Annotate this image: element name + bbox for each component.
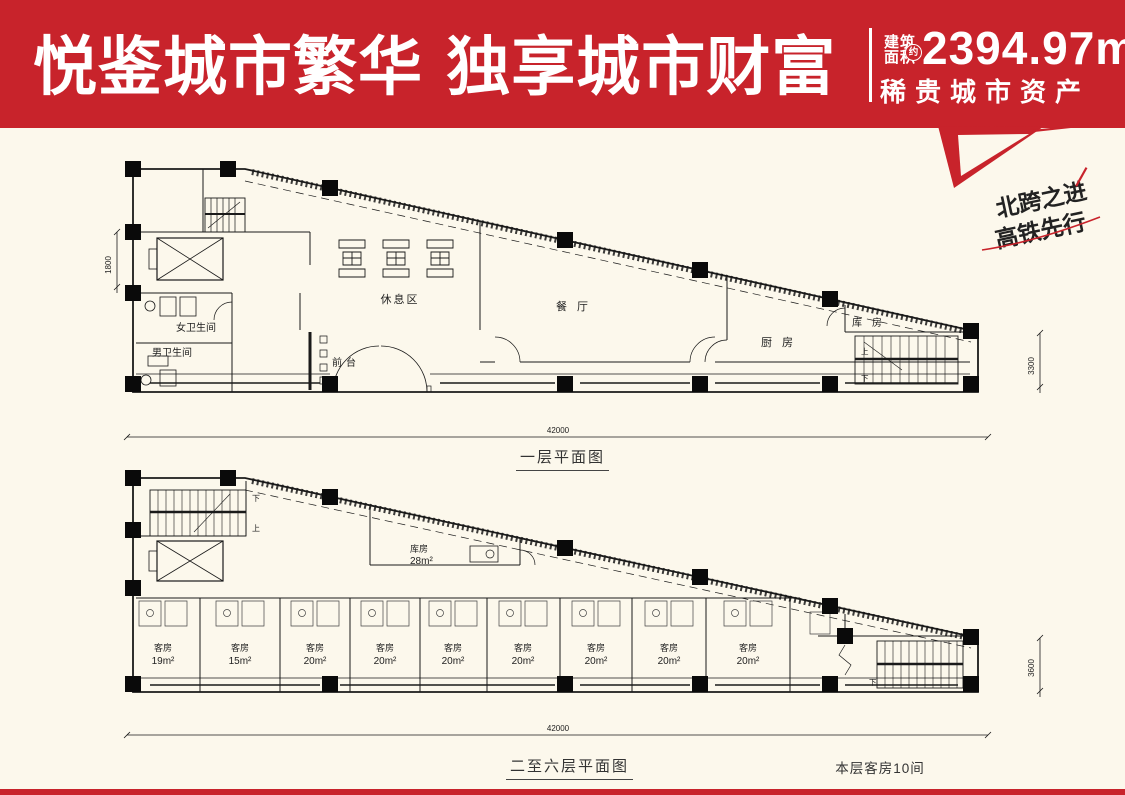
room-label-men-wc: 男卫生间 (152, 346, 192, 359)
floor2-diagonal-guide (245, 490, 971, 648)
room-name: 客房 (376, 642, 394, 653)
room-label-rest-area: 休息区 (381, 292, 420, 306)
floor1-dim-left: 1800 (104, 256, 113, 274)
room-name: 客房 (514, 642, 532, 653)
room-name: 客房 (231, 642, 249, 653)
room-area: 20m² (304, 656, 327, 667)
room-name: 客房 (660, 642, 678, 653)
floor1-stairs-topleft (205, 198, 245, 232)
floor1-stairs-right (855, 336, 958, 384)
room-area: 15m² (229, 656, 252, 667)
room-label-dining: 餐厅 (556, 299, 598, 313)
floor2-columns (125, 470, 979, 692)
wc-door-arc (214, 302, 232, 320)
storage-room-name: 库房 (410, 543, 428, 554)
room-area: 20m² (374, 656, 397, 667)
floor1-dining-kitchen-walls (480, 222, 971, 362)
floor2-elevator (149, 541, 223, 581)
room-area: 20m² (442, 656, 465, 667)
floor2-stairs-topleft (136, 481, 246, 536)
room-area: 20m² (512, 656, 535, 667)
floor1-dim-right: 3300 (1027, 357, 1036, 375)
room-label-storage: 库房 (852, 316, 892, 329)
floor2-dim-bottom: 42000 (547, 724, 570, 733)
entrance-door-arcs (333, 346, 427, 392)
floor1-rest-tables (339, 240, 453, 277)
floor1-elevator (149, 238, 223, 280)
floor2-caption-text: 二至六层平面图 (506, 755, 633, 780)
floor2-window-band (136, 678, 970, 685)
room-name: 客房 (154, 642, 172, 653)
room-name: 客房 (739, 642, 757, 653)
floor2-dimensions (124, 635, 1043, 738)
room-area: 20m² (585, 656, 608, 667)
room-area: 19m² (152, 656, 175, 667)
floor2-stairs-right (818, 614, 971, 688)
floor2-hatched-wall (252, 481, 974, 639)
floor2-room-count-note: 本层客房10间 (810, 757, 950, 777)
floor1-caption-text: 一层平面图 (516, 446, 609, 471)
room-name: 客房 (444, 642, 462, 653)
floor1-window-band (136, 346, 970, 392)
floor1-caption: 一层平面图 (480, 446, 645, 471)
floor-plans: 休息区 餐厅 厨房 库房 前台 女卫生间 男卫生间 上 下 42000 3300… (0, 0, 1125, 795)
room-label-women-wc: 女卫生间 (176, 321, 216, 334)
floor2-dim-right: 3600 (1027, 659, 1036, 677)
stair-up-label: 上 (252, 524, 260, 533)
stair-down-label: 下 (861, 374, 869, 383)
room-name: 客房 (587, 642, 605, 653)
floor2-bathroom-pods (139, 601, 830, 634)
floor1-hatched-wall (252, 172, 974, 333)
bottom-accent-strip (0, 789, 1125, 795)
room-name: 客房 (306, 642, 324, 653)
floor1-wc-fixtures (141, 297, 232, 386)
floor1-dimensions (114, 229, 1043, 440)
room-label-front-desk: 前台 (332, 356, 360, 369)
floor2-caption: 二至六层平面图 (482, 755, 657, 780)
floor1-columns (125, 161, 979, 392)
storage-room-area: 28m² (410, 556, 433, 567)
floor1-dim-bottom: 42000 (547, 426, 570, 435)
stair-up-label: 上 (861, 347, 869, 356)
floor2-plan: 下 上 库房 28m² 下 客房 19m² 客房 15m² 客房 20m² 客房… (124, 470, 1043, 738)
floor1-plan: 休息区 餐厅 厨房 库房 前台 女卫生间 男卫生间 上 下 42000 3300… (104, 161, 1043, 440)
floor1-outline (133, 169, 978, 392)
stair-down-label: 下 (869, 678, 877, 687)
floor2-outline (133, 478, 978, 692)
room-label-kitchen: 厨房 (761, 336, 803, 349)
room-area: 20m² (658, 656, 681, 667)
stair-down-label: 下 (252, 494, 260, 503)
room-area: 20m² (737, 656, 760, 667)
